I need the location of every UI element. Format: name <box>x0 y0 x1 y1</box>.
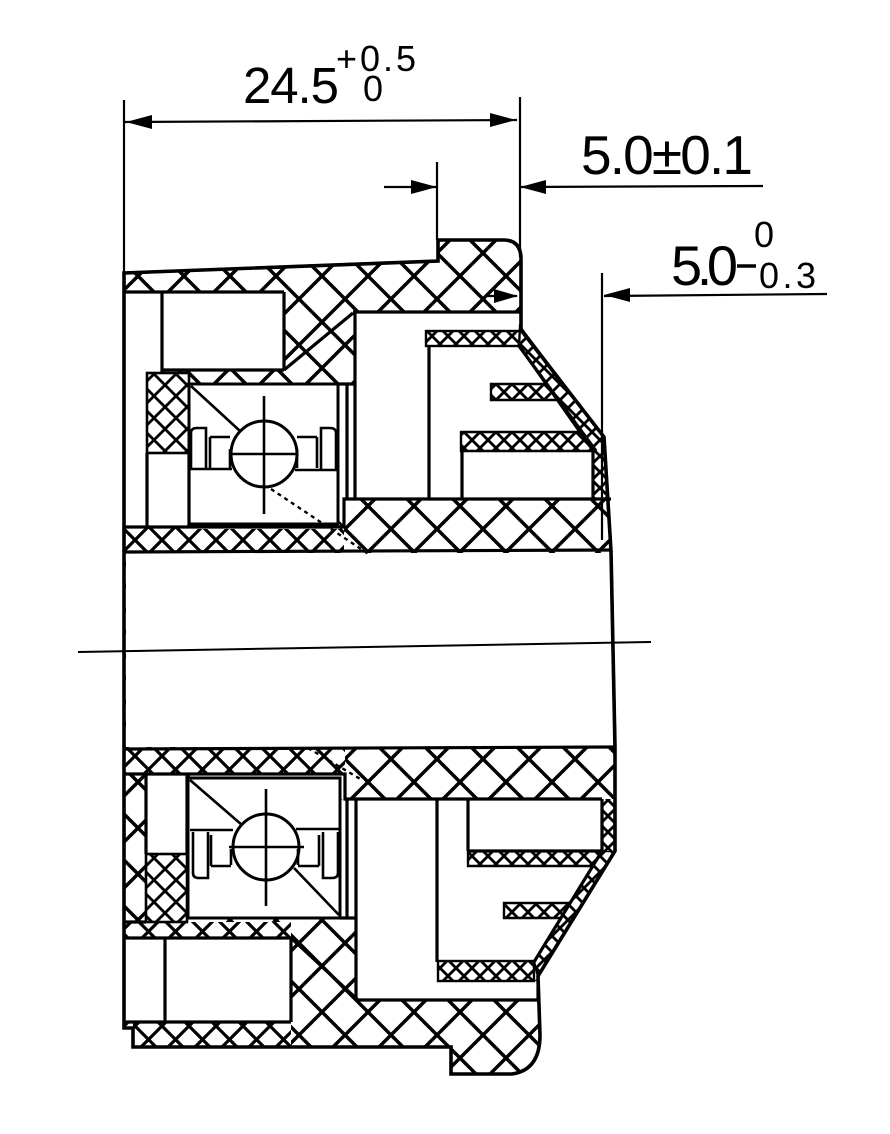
svg-text:0.3: 0.3 <box>759 255 816 296</box>
svg-text:5.0±0.1: 5.0±0.1 <box>581 124 753 186</box>
svg-text:0: 0 <box>754 214 774 255</box>
svg-text:5.0: 5.0 <box>671 234 738 297</box>
svg-text:0: 0 <box>363 68 383 109</box>
svg-text:24.5: 24.5 <box>243 57 339 114</box>
